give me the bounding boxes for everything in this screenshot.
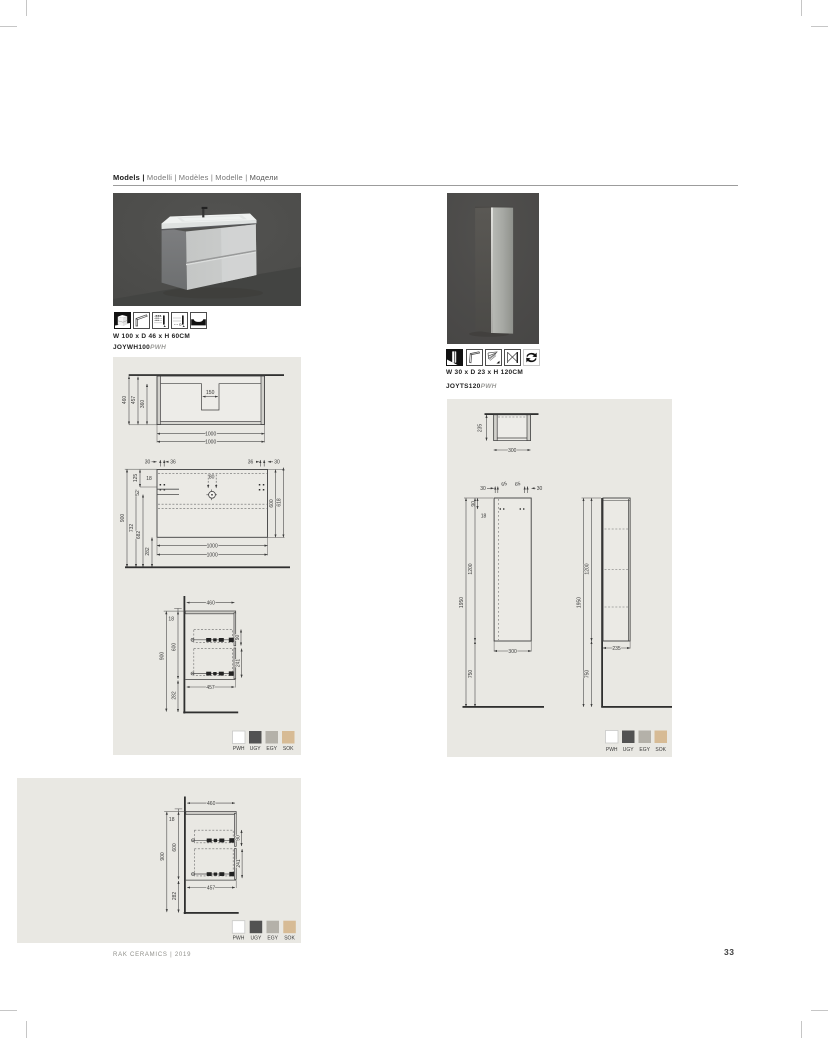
svg-text:30: 30 [145,460,151,466]
svg-text:UGY: UGY [250,746,262,752]
svg-text:300: 300 [508,649,517,655]
svg-text:36: 36 [170,460,176,466]
svg-text:1950: 1950 [576,597,582,608]
svg-text:30: 30 [536,486,542,492]
svg-text:30: 30 [274,460,280,466]
svg-text:1000: 1000 [205,440,216,446]
svg-text:235: 235 [477,424,483,433]
svg-text:750: 750 [467,670,473,679]
svg-text:UGY: UGY [250,935,262,941]
svg-text:PWH: PWH [233,746,245,752]
svg-text:457: 457 [131,396,137,405]
svg-text:300: 300 [508,448,517,454]
svg-text:1000: 1000 [207,543,218,549]
svg-text:SOK: SOK [283,746,294,752]
svg-text:18: 18 [480,514,486,520]
svg-text:52: 52 [135,490,141,496]
svg-text:80: 80 [209,475,215,481]
svg-text:125: 125 [133,474,139,483]
svg-text:EGY: EGY [266,746,277,752]
svg-text:PWH: PWH [232,935,244,941]
svg-text:460: 460 [122,396,128,405]
svg-text:235: 235 [612,646,621,652]
svg-text:1000: 1000 [205,432,216,438]
svg-text:682: 682 [136,531,142,540]
svg-text:150: 150 [206,390,215,396]
svg-text:EGY: EGY [267,935,278,941]
svg-text:EGY: EGY [639,747,650,753]
svg-text:UGY: UGY [622,747,634,753]
svg-text:732: 732 [129,524,135,533]
svg-text:1000: 1000 [207,552,218,558]
svg-text:36: 36 [248,460,254,466]
svg-text:SOK: SOK [655,747,666,753]
svg-text:90: 90 [470,501,476,507]
svg-text:30: 30 [480,486,486,492]
svg-text:900: 900 [120,514,126,523]
svg-text:618: 618 [276,498,282,507]
svg-text:1200: 1200 [584,563,590,574]
svg-text:600: 600 [269,499,275,508]
svg-text:360: 360 [140,400,146,409]
svg-text:750: 750 [584,670,590,679]
svg-text:18: 18 [146,476,152,482]
svg-text:PWH: PWH [605,747,617,753]
svg-text:SOK: SOK [284,935,295,941]
svg-text:1950: 1950 [458,597,464,608]
svg-text:282: 282 [145,547,151,556]
svg-text:1200: 1200 [467,563,473,574]
